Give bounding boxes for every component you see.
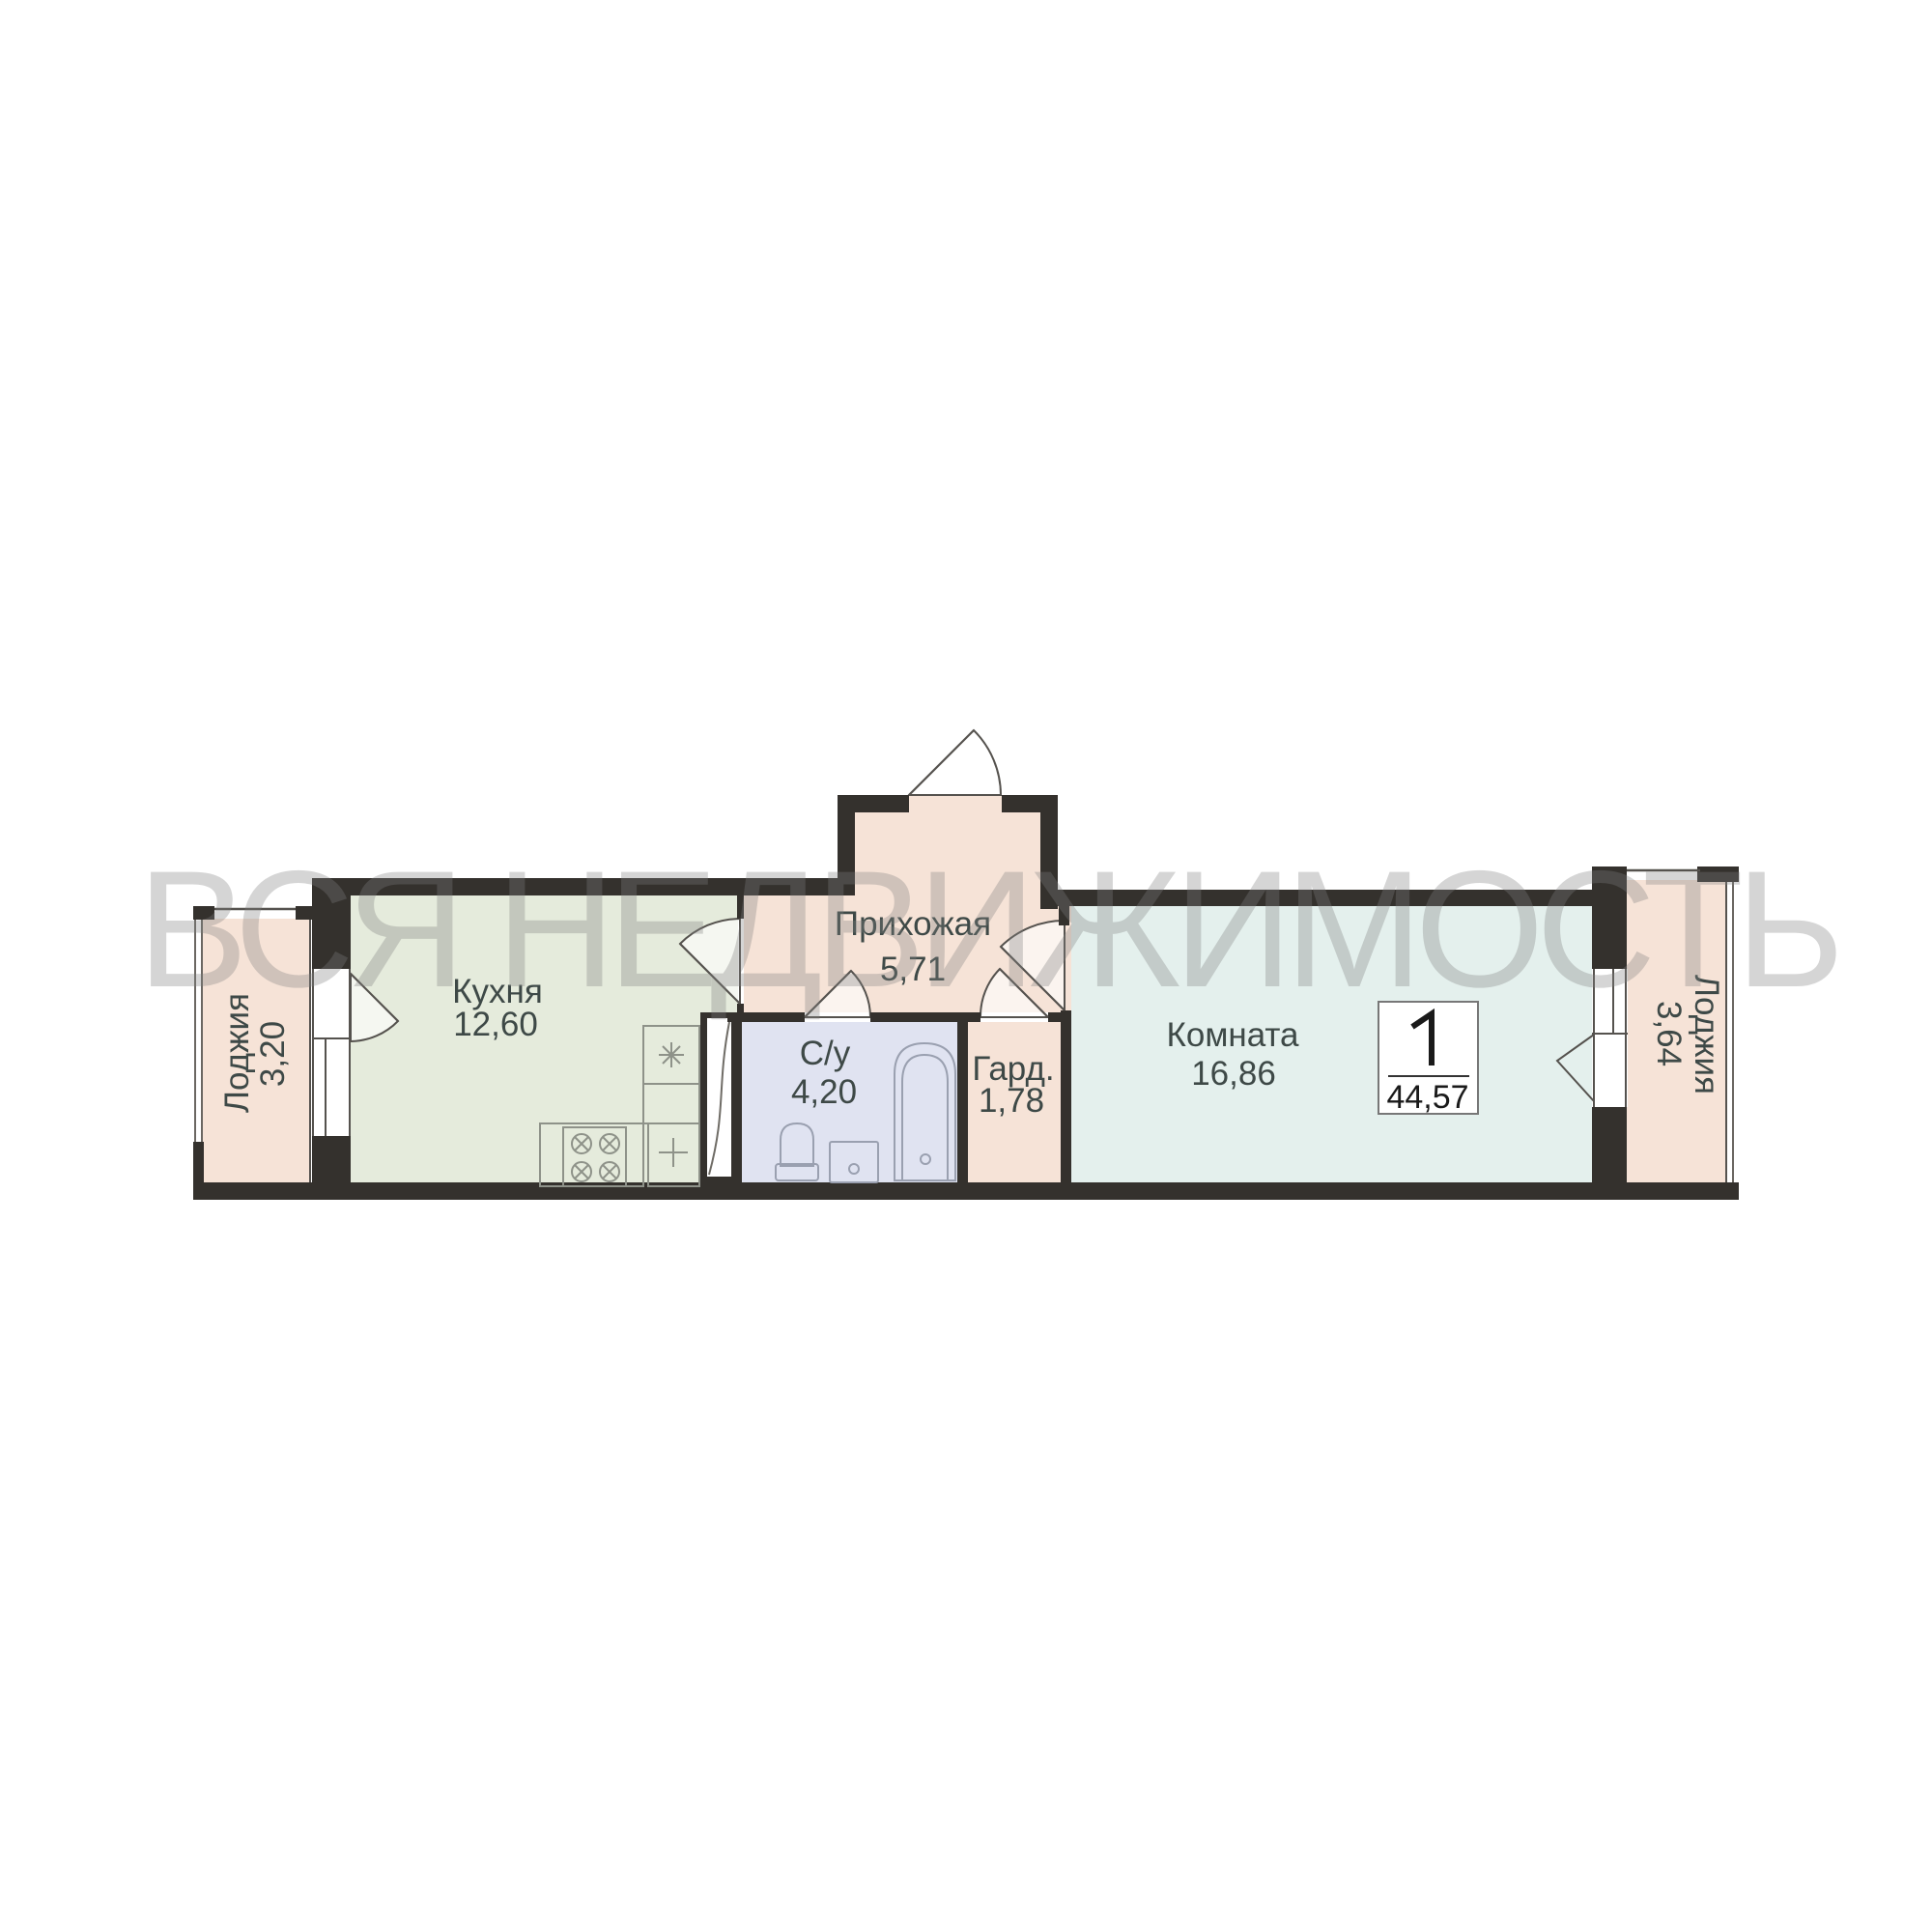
svg-text:3,20: 3,20 [254,1021,292,1087]
svg-text:ВСЯ НЕДВИЖИМОСТЬ: ВСЯ НЕДВИЖИМОСТЬ [137,837,1836,1022]
svg-text:1,78: 1,78 [979,1082,1044,1120]
svg-text:16,86: 16,86 [1191,1055,1276,1093]
svg-text:4,20: 4,20 [791,1073,857,1111]
svg-text:44,57: 44,57 [1386,1079,1468,1116]
svg-text:С/у: С/у [800,1035,851,1072]
